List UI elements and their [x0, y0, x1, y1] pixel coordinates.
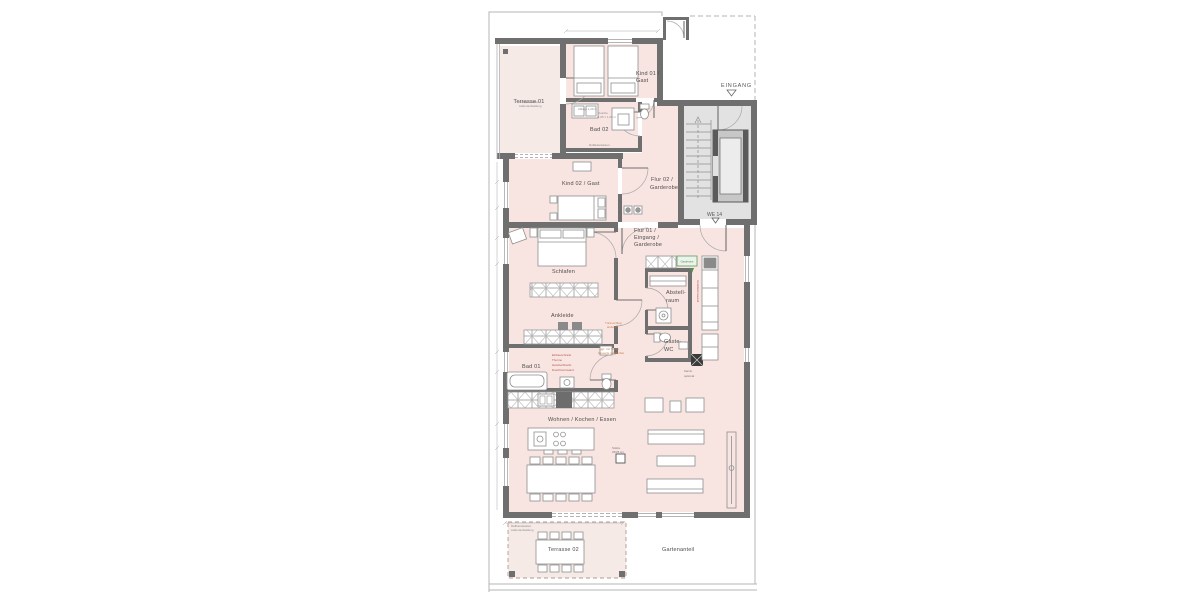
floor-plan-page: Terrasse 01 Kind 01 / Gast Bad 02 Kind 0…: [0, 0, 1200, 600]
entrance-arrow-icon: [727, 90, 736, 96]
kitchen-counter-icon: [508, 392, 614, 408]
note-bad01-3: Handtuchheizk.: [552, 363, 572, 367]
room-label-terrasse02: Terrasse 02: [548, 547, 579, 553]
note-ablage: Ablage 1,20 m: [578, 107, 597, 111]
terrasse01-border: [497, 44, 500, 159]
room-label-wohnen: Wohnen / Kochen / Essen: [548, 417, 616, 423]
room-label-flur01-3: Garderobe: [634, 242, 662, 248]
room-label-abstell-2: raum: [666, 298, 680, 304]
room-label-gartenanteil: Gartenanteil: [662, 547, 694, 553]
label-kamin-1: Kamin: [684, 369, 693, 373]
room-label-flur01-2: Eingang /: [634, 235, 659, 241]
note-raffstore1-2: Außenaufstellung: [519, 104, 542, 108]
fireplace-icon: [691, 354, 703, 366]
note-stuetze-2: 25/25 cm: [612, 450, 624, 454]
note-bad01-2: Therme: [552, 358, 562, 362]
storage-shelf-icon: [650, 276, 686, 286]
kitchen-tall-units-icon: [702, 256, 718, 360]
room-label-flur01-1: Flur 01 /: [634, 228, 656, 234]
room-label-flur02-2: Garderobe: [650, 185, 678, 191]
note-bad01-4: Duschtrennwand: [552, 368, 574, 372]
elevator-icon: [713, 130, 748, 202]
dining-table-icon: [527, 457, 595, 501]
room-label-kind01-1: Kind 01 /: [636, 71, 660, 77]
note-dusche-2: 1,05 × 1,05 m: [598, 115, 616, 119]
room-label-kind02: Kind 02 / Gast: [562, 181, 600, 187]
room-label-abstell-1: Abstell-: [666, 290, 686, 296]
floor-plan-svg: Terrasse 01 Kind 01 / Gast Bad 02 Kind 0…: [0, 0, 1200, 600]
note-installationswand: Installationswand: [696, 280, 700, 303]
terrace-corner-marker: [503, 49, 508, 54]
label-kamin-2: optional: [684, 374, 694, 378]
kitchen-island-icon: [528, 428, 594, 454]
note-garderobe-box: Garderobe: [681, 260, 694, 264]
room-label-kind01-2: Gast: [636, 78, 649, 84]
label-we14: WE 14: [707, 212, 722, 218]
note-raffstore2-2: Außenaufstellung: [511, 528, 534, 532]
label-eingang: EINGANG: [721, 83, 752, 89]
note-tuer-2: ändern: [607, 325, 617, 329]
note-bad01-1: Einbauschrank: [552, 353, 572, 357]
room-label-bad02: Bad 02: [590, 127, 609, 133]
washing-machine-icon: [656, 308, 671, 323]
room-label-gaestewc-1: Gäste-: [664, 339, 682, 345]
room-label-flur02-1: Flur 02 /: [651, 177, 673, 183]
note-theke-2: bauseits möblierbar: [598, 351, 624, 355]
room-label-schlafen: Schlafen: [552, 269, 575, 275]
room-label-ankleide: Ankleide: [551, 313, 574, 319]
note-rollladen: Rollladenkasten: [589, 143, 610, 147]
room-label-bad01: Bad 01: [522, 364, 541, 370]
room-label-gaestewc-2: WC: [664, 347, 674, 353]
column-icon: [616, 454, 625, 463]
